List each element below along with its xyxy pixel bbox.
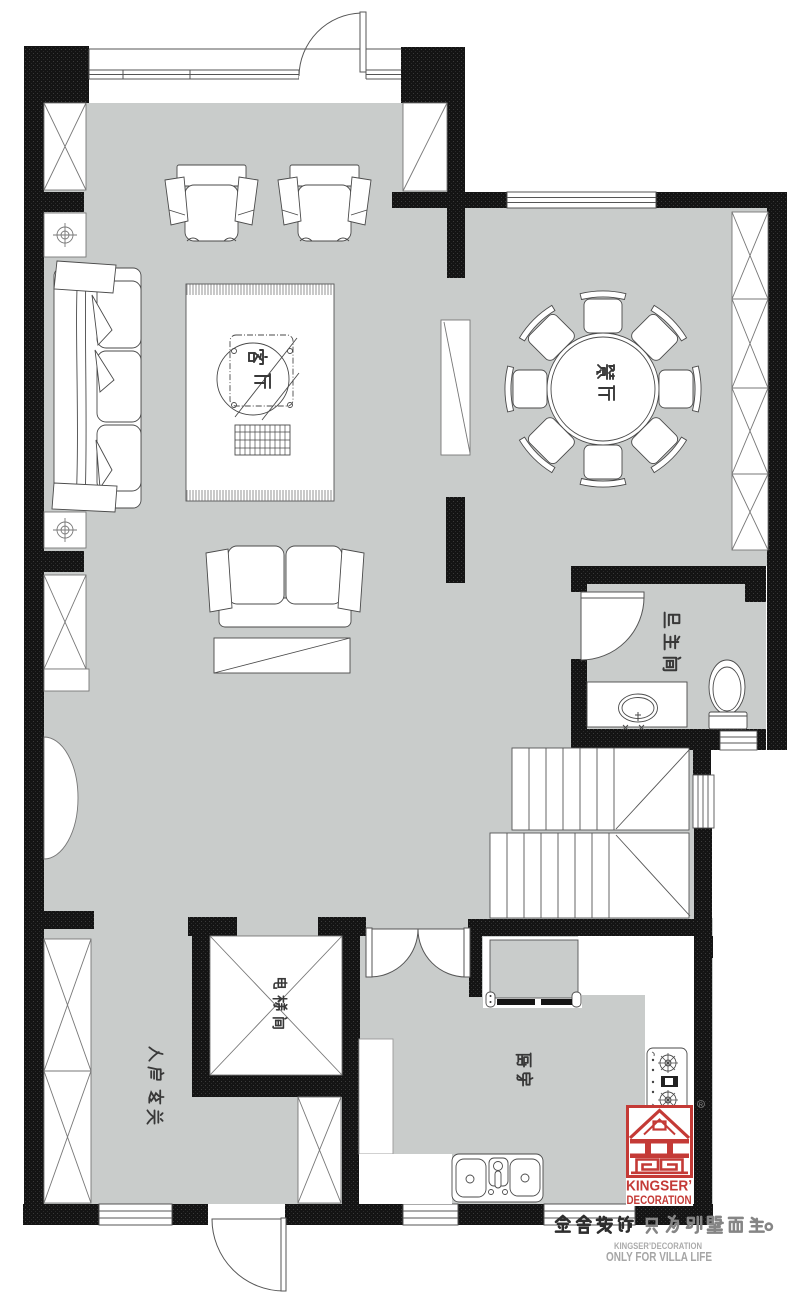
svg-text:R: R — [699, 1103, 703, 1109]
svg-text:ONLY FOR VILLA LIFE: ONLY FOR VILLA LIFE — [606, 1250, 712, 1264]
svg-text:KINGSERʼ: KINGSERʼ — [626, 1178, 692, 1195]
svg-text:DECORATION: DECORATION — [627, 1195, 692, 1207]
